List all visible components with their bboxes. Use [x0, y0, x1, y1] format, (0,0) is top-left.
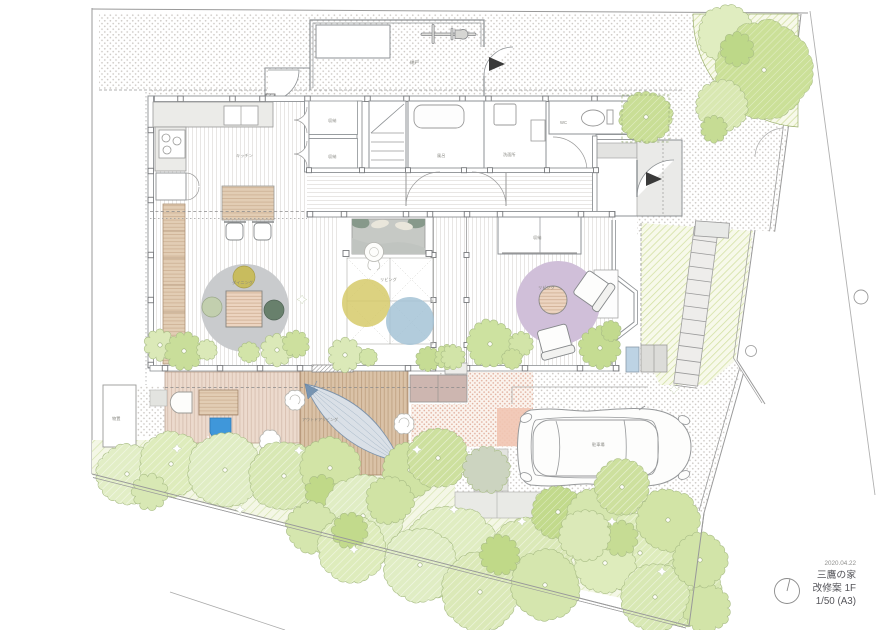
svg-text:駐車場: 駐車場 [592, 441, 605, 448]
svg-text:1/50 (A3): 1/50 (A3) [816, 596, 856, 607]
svg-text:物置: 物置 [112, 415, 120, 422]
svg-text:収納: 収納 [328, 117, 336, 124]
svg-text:リビング: リビング [380, 276, 397, 283]
svg-text:洗面所: 洗面所 [503, 151, 516, 158]
svg-text:WC: WC [560, 120, 567, 125]
svg-text:三鷹の家: 三鷹の家 [817, 568, 856, 581]
svg-text:2020.04.22: 2020.04.22 [824, 560, 856, 567]
svg-text:リビング: リビング [538, 284, 555, 291]
svg-text:アウトドアリビング: アウトドアリビング [302, 416, 338, 422]
svg-text:ダイニング: ダイニング [232, 279, 253, 286]
svg-text:納戸: 納戸 [410, 59, 419, 66]
svg-text:収納: 収納 [328, 153, 336, 160]
svg-text:改修案 1F: 改修案 1F [812, 581, 856, 594]
svg-text:キッチン: キッチン [236, 153, 253, 158]
svg-text:収納: 収納 [533, 234, 541, 241]
